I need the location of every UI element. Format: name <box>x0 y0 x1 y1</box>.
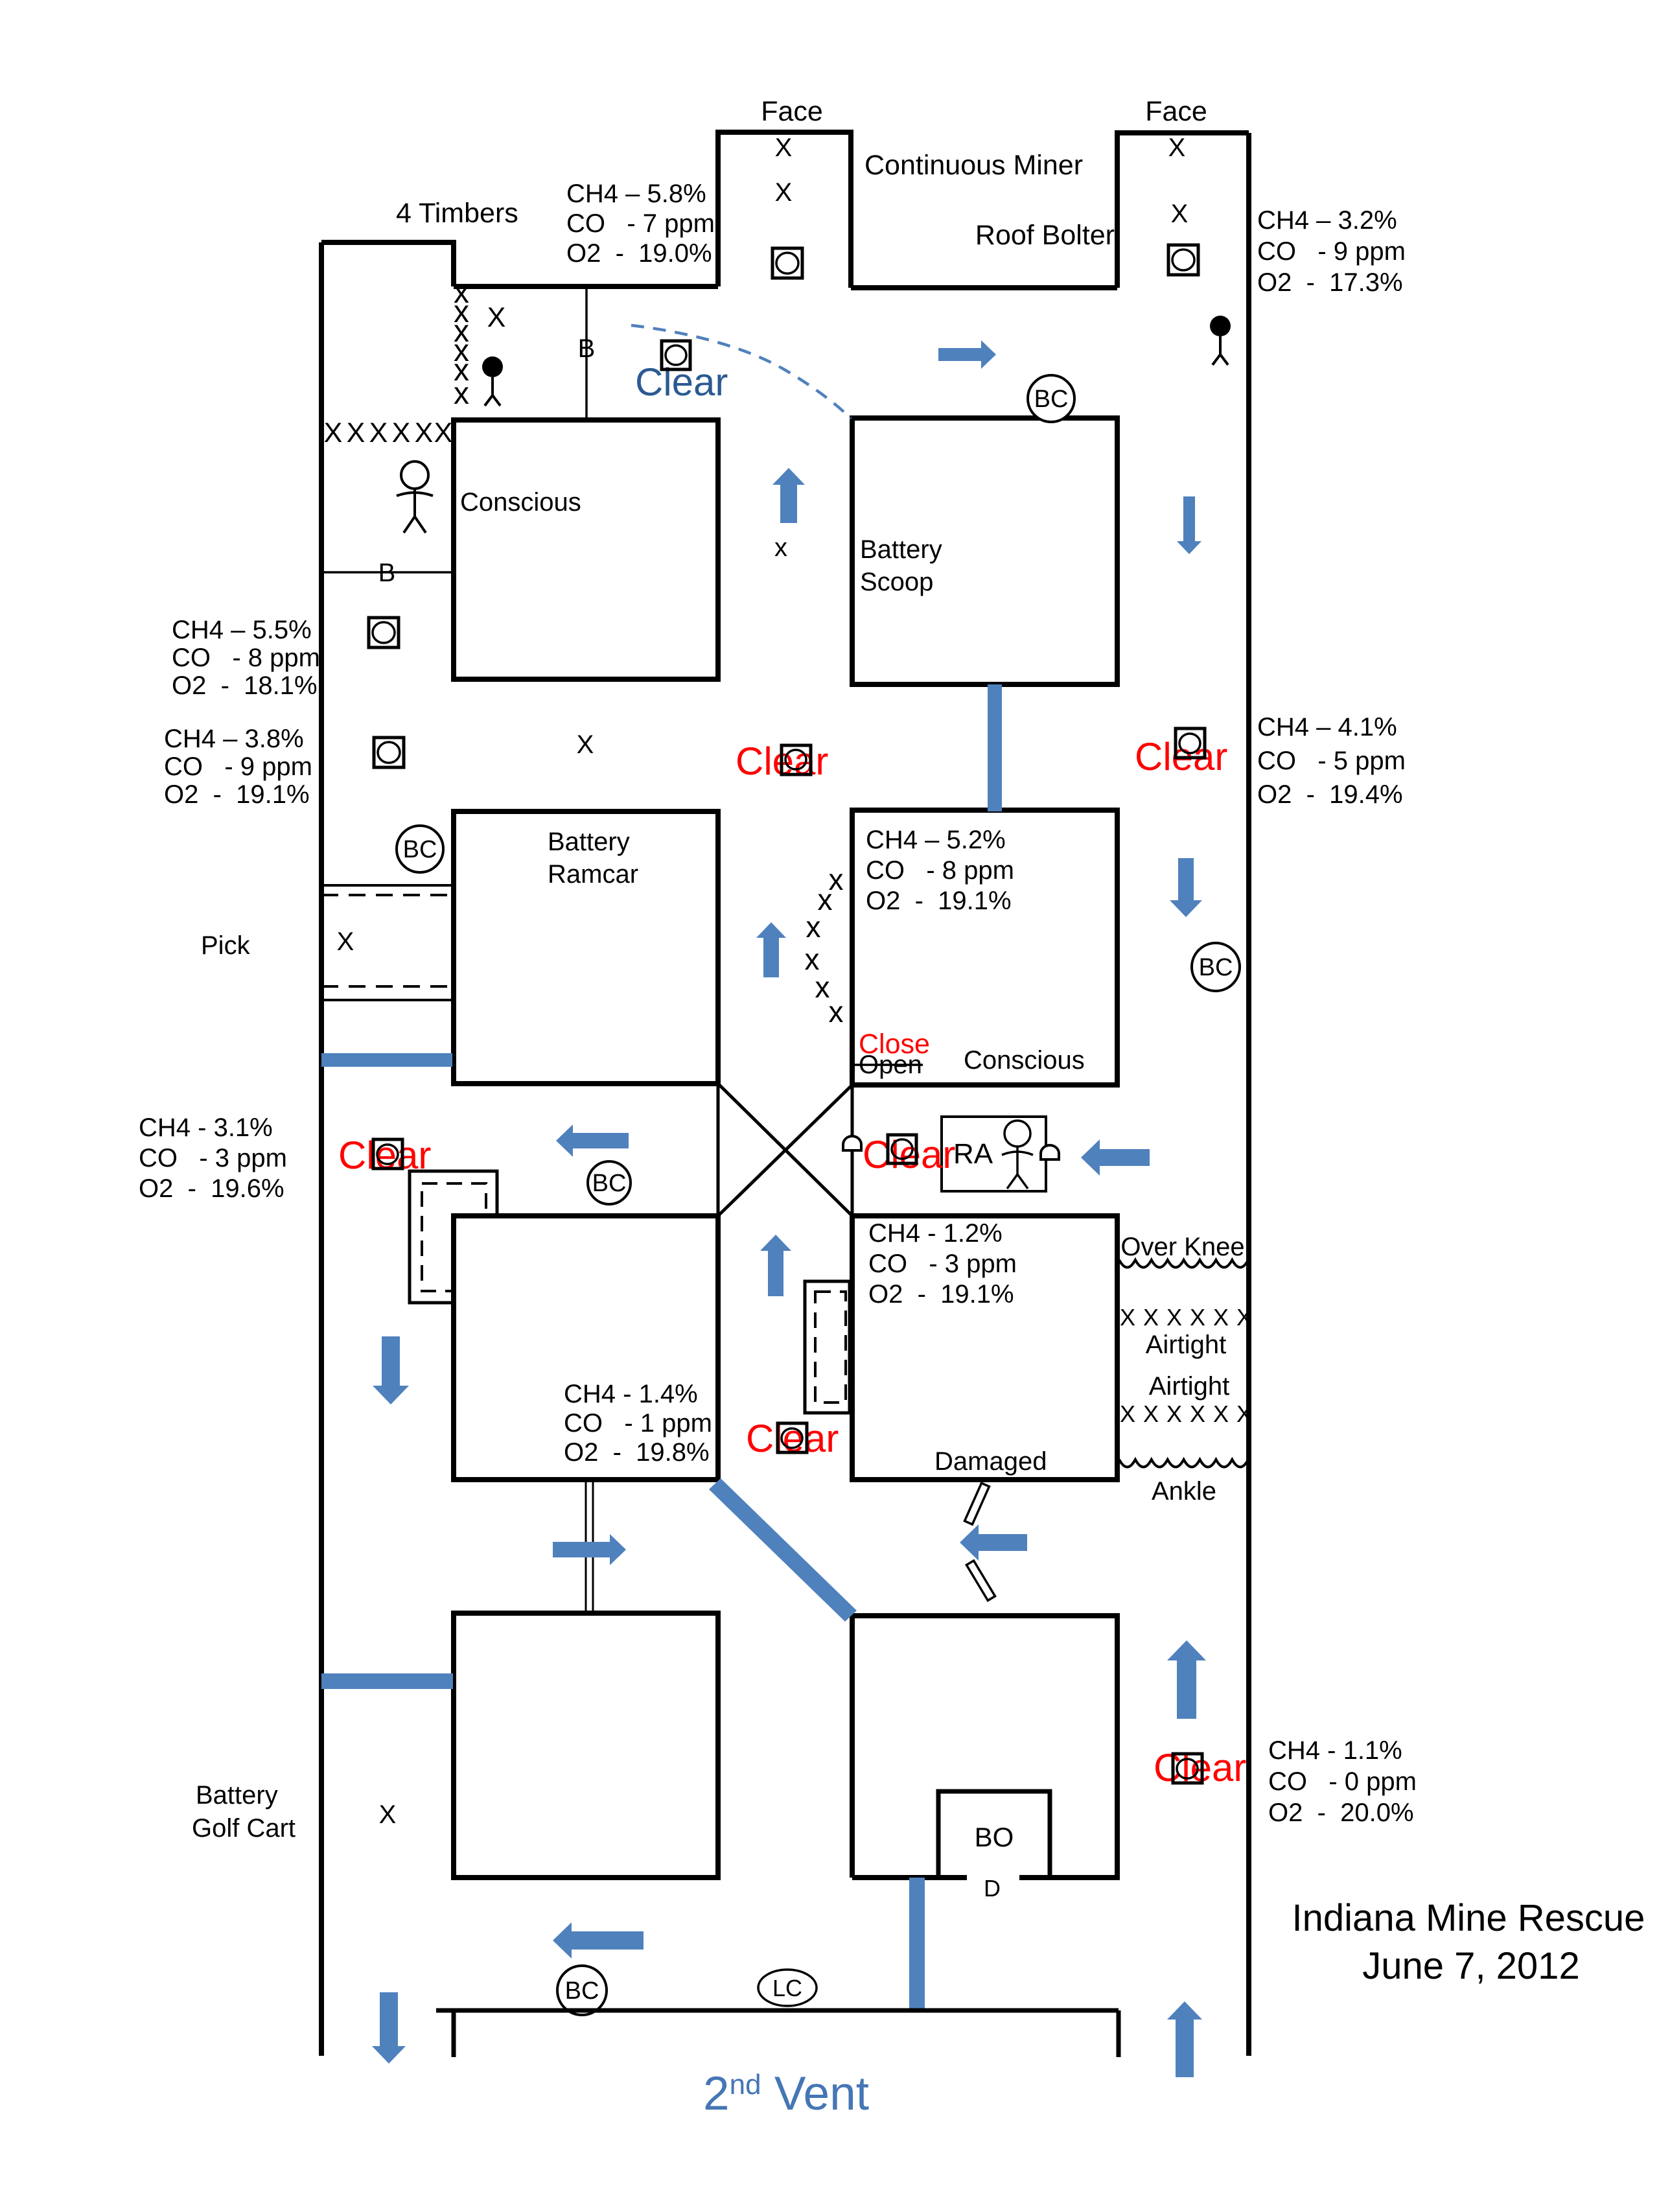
svg-text:O2 - 19.1%: O2 - 19.1% <box>866 887 1012 915</box>
svg-text:X: X <box>1236 1304 1252 1331</box>
svg-text:Roof Bolter: Roof Bolter <box>975 220 1115 251</box>
svg-text:CH4 – 5.8%: CH4 – 5.8% <box>566 180 706 208</box>
svg-text:X: X <box>577 730 594 759</box>
svg-text:Battery: Battery <box>196 1781 278 1810</box>
svg-text:O2 - 19.4%: O2 - 19.4% <box>1257 780 1403 809</box>
svg-text:X: X <box>1190 1304 1205 1331</box>
svg-text:Clear: Clear <box>635 360 728 404</box>
svg-text:X: X <box>434 417 453 448</box>
svg-text:BC: BC <box>1034 386 1069 413</box>
svg-text:CO - 1 ppm: CO - 1 ppm <box>564 1409 712 1438</box>
svg-text:BC: BC <box>565 1977 599 2005</box>
svg-text:Airtight: Airtight <box>1146 1331 1227 1359</box>
svg-text:Conscious: Conscious <box>460 488 581 517</box>
svg-text:Pick: Pick <box>201 931 251 960</box>
svg-text:CH4 - 1.1%: CH4 - 1.1% <box>1268 1736 1402 1765</box>
svg-text:CH4 – 3.8%: CH4 – 3.8% <box>164 725 304 753</box>
svg-text:X: X <box>1168 134 1186 162</box>
svg-text:Indiana Mine Rescue: Indiana Mine Rescue <box>1292 1897 1645 1939</box>
svg-text:Golf Cart: Golf Cart <box>192 1814 296 1843</box>
svg-text:Clear: Clear <box>863 1133 955 1176</box>
svg-text:CH4 – 5.5%: CH4 – 5.5% <box>172 616 312 644</box>
svg-text:BC: BC <box>592 1170 627 1197</box>
svg-text:Continuous Miner: Continuous Miner <box>864 150 1083 181</box>
svg-text:x: x <box>774 533 787 562</box>
svg-text:x: x <box>454 377 469 411</box>
svg-text:Battery: Battery <box>860 535 942 564</box>
svg-text:CO - 5 ppm: CO - 5 ppm <box>1257 747 1406 775</box>
svg-text:Damaged: Damaged <box>934 1447 1047 1476</box>
svg-text:X: X <box>1166 1304 1182 1331</box>
svg-text:CH4 – 3.2%: CH4 – 3.2% <box>1257 206 1397 235</box>
svg-text:4 Timbers: 4 Timbers <box>396 198 518 229</box>
svg-text:O2 - 17.3%: O2 - 17.3% <box>1257 268 1403 297</box>
svg-text:B: B <box>578 334 596 363</box>
svg-text:CO - 3 ppm: CO - 3 ppm <box>139 1144 287 1172</box>
svg-text:CH4 – 4.1%: CH4 – 4.1% <box>1257 713 1397 741</box>
svg-text:Over Knee: Over Knee <box>1120 1233 1244 1261</box>
svg-text:O2 - 19.0%: O2 - 19.0% <box>566 239 712 268</box>
svg-text:Airtight: Airtight <box>1149 1372 1230 1401</box>
svg-text:Battery: Battery <box>548 828 630 856</box>
svg-text:CH4 – 5.2%: CH4 – 5.2% <box>866 826 1006 854</box>
svg-text:O2 - 20.0%: O2 - 20.0% <box>1268 1799 1414 1827</box>
svg-text:O2 - 19.1%: O2 - 19.1% <box>868 1280 1014 1309</box>
svg-text:X: X <box>1213 1304 1229 1331</box>
svg-text:D: D <box>984 1875 1001 1902</box>
svg-text:Ankle: Ankle <box>1152 1477 1216 1506</box>
svg-text:X: X <box>1143 1304 1159 1331</box>
svg-text:X: X <box>775 134 793 162</box>
svg-text:BC: BC <box>403 836 437 863</box>
svg-text:CO - 0 ppm: CO - 0 ppm <box>1268 1767 1417 1796</box>
svg-text:Face: Face <box>1145 96 1207 127</box>
svg-text:X: X <box>1213 1401 1229 1427</box>
svg-text:x: x <box>806 910 821 944</box>
svg-text:X: X <box>1120 1304 1135 1331</box>
svg-text:Ramcar: Ramcar <box>548 860 638 889</box>
svg-text:June 7, 2012: June 7, 2012 <box>1362 1945 1579 1987</box>
svg-text:O2 - 19.6%: O2 - 19.6% <box>139 1174 284 1203</box>
svg-text:CH4 - 1.2%: CH4 - 1.2% <box>868 1219 1003 1248</box>
svg-text:X: X <box>369 417 388 448</box>
svg-text:X: X <box>337 927 354 956</box>
svg-text:x: x <box>815 970 830 1004</box>
svg-text:X: X <box>1120 1401 1135 1427</box>
svg-text:Conscious: Conscious <box>964 1046 1085 1075</box>
svg-text:X: X <box>1166 1401 1182 1427</box>
svg-text:X: X <box>775 178 793 207</box>
svg-text:X: X <box>347 417 365 448</box>
svg-text:X: X <box>1236 1401 1252 1427</box>
svg-text:X: X <box>1143 1401 1159 1427</box>
svg-text:x: x <box>829 995 844 1029</box>
svg-text:X: X <box>487 302 506 333</box>
svg-text:RA: RA <box>953 1138 993 1170</box>
svg-text:CO - 7 ppm: CO - 7 ppm <box>566 209 715 238</box>
svg-text:CO - 9 ppm: CO - 9 ppm <box>164 752 312 781</box>
svg-text:2nd Vent: 2nd Vent <box>703 2067 869 2120</box>
svg-text:CO - 9 ppm: CO - 9 ppm <box>1257 237 1406 266</box>
svg-text:X: X <box>1190 1401 1205 1427</box>
svg-text:BC: BC <box>1199 954 1233 981</box>
svg-text:B: B <box>378 559 396 587</box>
svg-text:X: X <box>415 417 434 448</box>
svg-text:Face: Face <box>761 96 823 127</box>
svg-text:CH4 - 3.1%: CH4 - 3.1% <box>139 1113 273 1142</box>
svg-text:CH4 - 1.4%: CH4 - 1.4% <box>564 1380 698 1408</box>
svg-text:CO - 8 ppm: CO - 8 ppm <box>172 644 320 672</box>
svg-text:X: X <box>1171 200 1189 228</box>
svg-text:CO - 3 ppm: CO - 3 ppm <box>868 1250 1017 1278</box>
svg-text:X: X <box>324 417 343 448</box>
svg-text:BO: BO <box>975 1822 1014 1852</box>
svg-text:O2 - 18.1%: O2 - 18.1% <box>172 671 318 700</box>
svg-text:CO - 8 ppm: CO - 8 ppm <box>866 856 1014 885</box>
svg-text:LC: LC <box>772 1975 802 2001</box>
svg-text:X: X <box>379 1800 397 1829</box>
svg-text:O2 - 19.8%: O2 - 19.8% <box>564 1438 710 1467</box>
svg-text:O2 - 19.1%: O2 - 19.1% <box>164 780 310 809</box>
svg-text:Scoop: Scoop <box>860 568 933 596</box>
svg-text:X: X <box>392 417 411 448</box>
